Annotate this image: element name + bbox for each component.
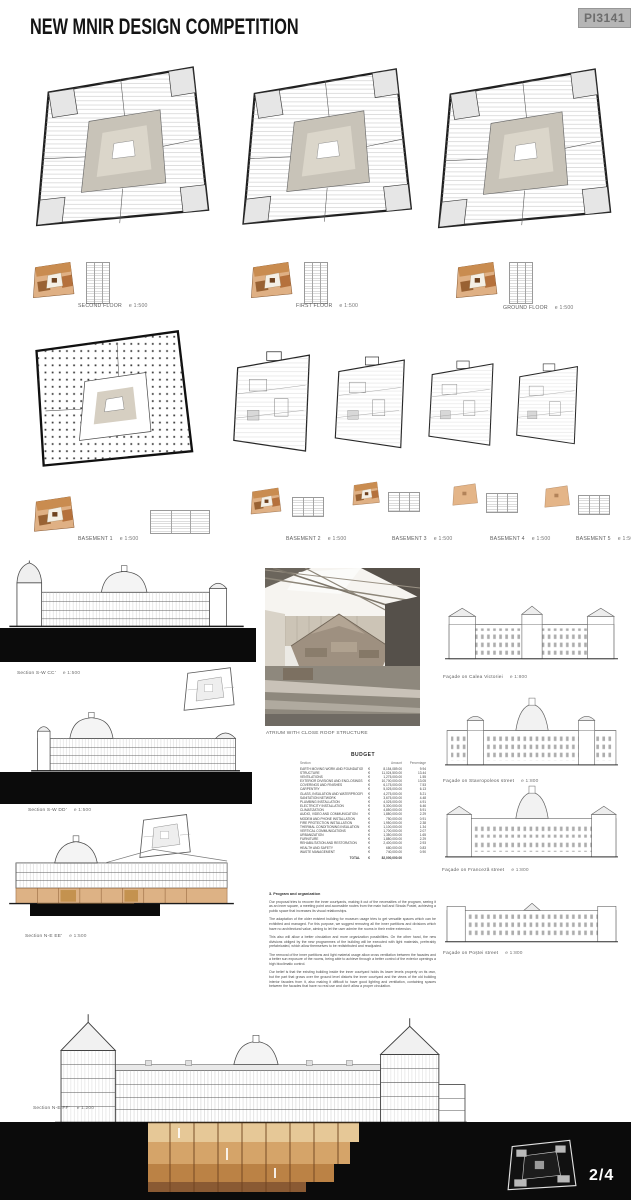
- competition-board: NEW MNIR DESIGN COMPETITION PI3141 SECON…: [0, 0, 631, 1200]
- section-ee-label: Section N-E EE'e 1:500: [25, 934, 87, 939]
- budget-row: WASTE MANAGEMENT€740,000.000.90: [300, 850, 426, 854]
- second-floor-key-plan: [32, 258, 78, 302]
- basement5-legend-table: [578, 495, 610, 515]
- first-floor-plan-drawing: [236, 60, 424, 248]
- section-dd-label: Section S-W DD'e 1:500: [28, 808, 91, 813]
- basement4-legend-table: [486, 493, 518, 513]
- section-cc-ground-poche: [0, 628, 256, 662]
- basement1-plan-drawing: [26, 326, 208, 478]
- section-ff-drawing: [55, 1010, 467, 1129]
- program-paragraph: Our proposal tries to recover the inner …: [269, 900, 436, 914]
- basement4-plan-drawing: [424, 356, 502, 458]
- section-cc-label: Section S-W CC'e 1:500: [17, 671, 80, 676]
- basement5-key-plan: [544, 484, 572, 509]
- budget-col-amount: Amount: [372, 761, 402, 765]
- basement3-legend-table: [388, 492, 420, 512]
- program-paragraph: The removal of the inner partitions and …: [269, 953, 436, 967]
- budget-col-section: Section: [300, 761, 363, 765]
- budget-col-percentage: Percentage: [402, 761, 426, 765]
- program-paragraph: The adaptation of the older existent bui…: [269, 917, 436, 931]
- program-paragraph: Our belief is that the existing building…: [269, 970, 436, 989]
- basement3-label: BASEMENT 3e 1:500: [392, 536, 453, 542]
- basement3-plan-drawing: [330, 353, 414, 460]
- basement1-label: BASEMENT 1e 1:500: [78, 536, 139, 542]
- budget-total-amount: 82,000,000.00: [372, 856, 402, 860]
- budget-title: BUDGET: [300, 752, 426, 758]
- ground-floor-label: GROUND FLOORe 1:500: [503, 305, 574, 311]
- section-ff-label: Section N-E FF'e 1:200: [33, 1106, 94, 1111]
- page-title: NEW MNIR DESIGN COMPETITION: [30, 14, 299, 40]
- ground-floor-plan-drawing: [430, 60, 625, 252]
- budget-total-label: TOTAL: [300, 856, 363, 860]
- section-ee-ground-poche: [30, 904, 160, 916]
- basement1-key-plan: [33, 494, 78, 534]
- second-floor-label: SECOND FLOORe 1:500: [78, 303, 148, 309]
- first-floor-legend-table: [304, 262, 328, 304]
- budget-table: BUDGET Section Amount Percentage EARTH M…: [300, 752, 426, 860]
- facade-franceza-drawing: [443, 784, 620, 865]
- facade-calea-victoriei-drawing: [443, 600, 620, 667]
- basement4-label: BASEMENT 4e 1:500: [490, 536, 551, 542]
- ground-floor-key-plan: [455, 258, 501, 302]
- program-paragraphs: Our proposal tries to recover the inner …: [269, 900, 436, 989]
- facade-postei-drawing: [443, 896, 620, 949]
- basement3-key-plan: [352, 480, 382, 507]
- basement5-plan-drawing: [512, 358, 586, 457]
- ground-floor-legend-table: [509, 262, 533, 304]
- first-floor-key-plan: [250, 258, 296, 302]
- first-floor-label: FIRST FLOORe 1:500: [296, 303, 358, 309]
- facade-franceza-label: Façade on Franceză streete 1:800: [442, 868, 529, 873]
- facade-postei-label: Façade on Poștei streete 1:800: [443, 951, 523, 956]
- basement1-legend-table: [150, 510, 210, 534]
- basement5-label: BASEMENT 5e 1:500: [576, 536, 631, 542]
- section-ff-basement-colored: [148, 1122, 363, 1196]
- section-dd-ground-poche: [0, 772, 252, 804]
- basement2-legend-table: [292, 497, 324, 517]
- budget-rows: EARTH MOVING WORK AND FOUNDATIONS€8,154,…: [300, 767, 426, 854]
- basement2-label: BASEMENT 2e 1:500: [286, 536, 347, 542]
- facade-stavropoleos-drawing: [443, 694, 620, 775]
- budget-header-row: Section Amount Percentage: [300, 761, 426, 765]
- budget-total-row: TOTAL € 82,000,000.00: [300, 856, 426, 860]
- program-text-block: 3. Program and organization Our proposal…: [269, 892, 436, 992]
- program-paragraph: This also will allow a better circulatio…: [269, 935, 436, 949]
- basement2-key-plan: [250, 486, 284, 516]
- section-ff-key-plan-inverted: [504, 1136, 580, 1194]
- atrium-render-image: [265, 568, 420, 726]
- basement2-plan-drawing: [228, 350, 320, 462]
- budget-total-currency: €: [363, 856, 372, 860]
- section-dd-drawing: [30, 706, 242, 778]
- second-floor-plan-drawing: [28, 58, 223, 250]
- render-caption: ATRIUM WITH CLOSE ROOF STRUCTURE: [266, 731, 368, 736]
- second-floor-legend-table: [86, 262, 110, 304]
- program-heading: 3. Program and organization: [269, 892, 436, 897]
- section-cc-drawing: [8, 560, 246, 634]
- facade-calea-victoriei-label: Façade on Calea Victorieie 1:800: [443, 675, 527, 680]
- page-number: 2/4: [589, 1167, 614, 1185]
- team-code-badge: PI3141: [578, 8, 631, 28]
- basement4-key-plan: [452, 482, 480, 507]
